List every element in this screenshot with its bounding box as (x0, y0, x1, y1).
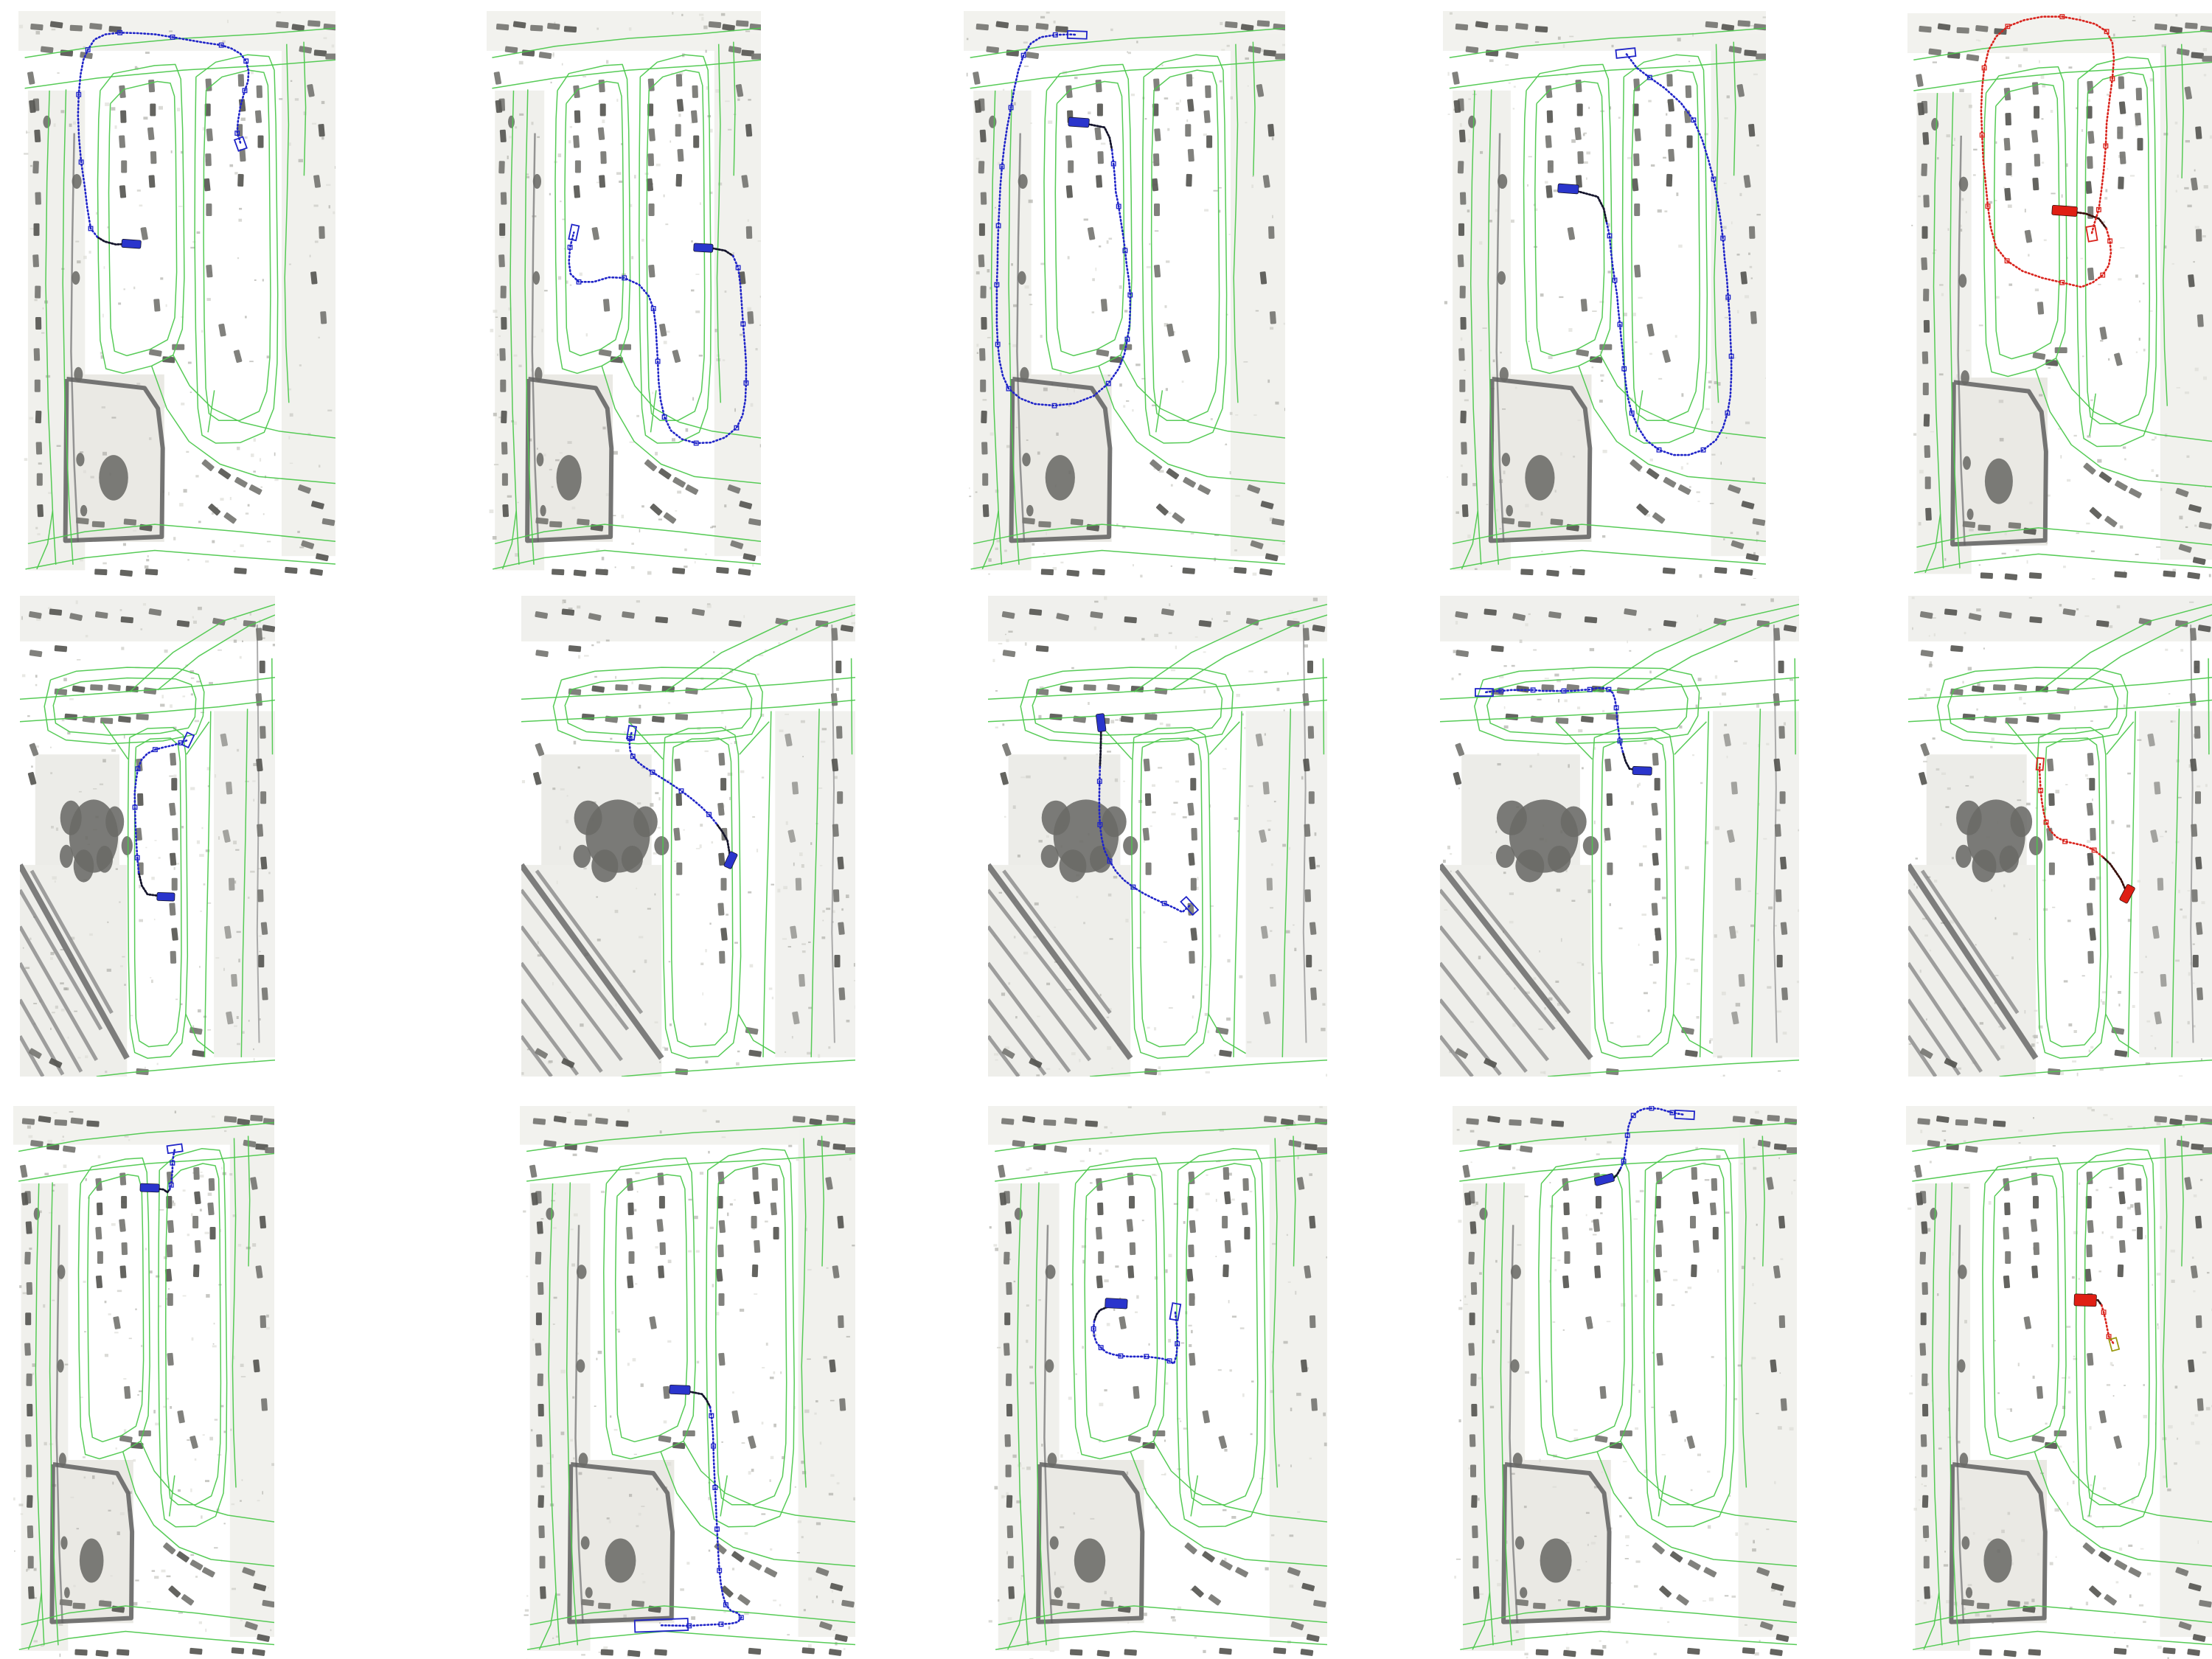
map-canvas-r2c3 (1453, 1106, 1797, 1659)
waypoint-markers (2101, 1310, 2111, 1339)
map-canvas-r0c3 (1443, 11, 1766, 579)
vehicle-marker (2074, 1294, 2097, 1307)
vehicle-marker (723, 851, 737, 869)
vehicle-marker (1558, 184, 1579, 194)
goal-marker (2109, 1338, 2119, 1351)
vehicle-marker (1632, 766, 1652, 775)
map-panel-r1c4 (1908, 596, 2212, 1077)
map-canvas-r1c4 (1908, 596, 2212, 1077)
map-panel-r2c4 (1906, 1106, 2212, 1659)
map-panel-r0c2 (964, 11, 1285, 579)
map-canvas-r1c0 (20, 596, 275, 1077)
vehicle-marker (669, 1385, 690, 1394)
map-canvas-r2c4 (1906, 1106, 2212, 1659)
vehicle-marker (1096, 714, 1106, 732)
map-panel-r1c0 (20, 596, 275, 1077)
map-panel-r0c3 (1443, 11, 1766, 579)
vehicle-marker (2052, 205, 2078, 216)
trajectory-path (2039, 764, 2103, 857)
map-panel-r2c3 (1453, 1106, 1797, 1659)
goal-marker (167, 1144, 183, 1153)
map-panel-r0c4 (1907, 13, 2212, 582)
trajectory-path (78, 32, 248, 237)
map-panel-r2c1 (520, 1106, 855, 1659)
map-canvas-r2c2 (988, 1106, 1327, 1659)
map-canvas-r0c4 (1907, 13, 2212, 582)
vehicle-marker (122, 239, 142, 248)
trajectory-figure-grid (0, 0, 2212, 1659)
vehicle-marker (2119, 884, 2135, 904)
map-canvas-r0c0 (18, 11, 335, 579)
waypoint-markers (687, 1413, 743, 1628)
map-canvas-r1c2 (988, 596, 1327, 1077)
map-panel-r1c2 (988, 596, 1327, 1077)
map-panel-r2c0 (13, 1106, 274, 1659)
map-panel-r0c1 (487, 11, 761, 579)
trajectory-path (1981, 17, 2114, 288)
map-canvas-r0c2 (964, 11, 1285, 579)
map-panel-r0c0 (18, 11, 335, 579)
map-canvas-r2c0 (13, 1106, 274, 1659)
map-canvas-r1c3 (1440, 596, 1799, 1077)
map-canvas-r1c1 (521, 596, 855, 1077)
goal-marker (234, 137, 247, 151)
vehicle-marker (1105, 1298, 1128, 1310)
vehicle-marker (157, 892, 175, 901)
vehicle-marker (1068, 117, 1090, 128)
trajectory-past-path (2103, 857, 2127, 894)
vehicle-marker (140, 1183, 159, 1192)
vehicle-marker (694, 243, 714, 252)
waypoint-markers (1091, 1326, 1179, 1363)
map-panel-r1c1 (521, 596, 855, 1077)
map-panel-r1c3 (1440, 596, 1799, 1077)
waypoint-markers (1980, 15, 2114, 285)
map-canvas-r2c1 (520, 1106, 855, 1659)
map-panel-r2c2 (988, 1106, 1327, 1659)
map-canvas-r0c1 (487, 11, 761, 579)
